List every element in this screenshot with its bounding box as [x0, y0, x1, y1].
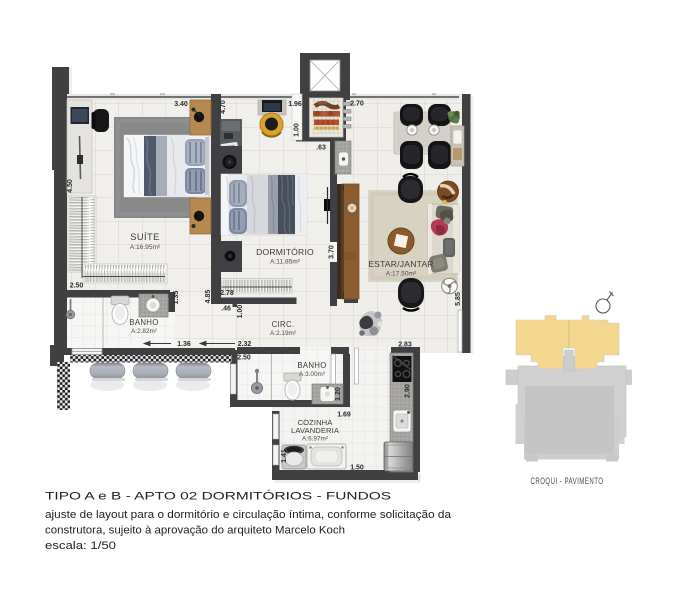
svg-text:.63: .63	[316, 145, 326, 152]
svg-text:A:17.50m²: A:17.50m²	[386, 271, 417, 278]
svg-text:SUÍTE: SUÍTE	[130, 232, 159, 242]
svg-text:1.35: 1.35	[173, 291, 180, 305]
svg-text:2.90: 2.90	[405, 384, 412, 398]
svg-text:1.69: 1.69	[337, 412, 351, 419]
svg-text:construtora, sujeito à aprovaç: construtora, sujeito à aprovação do arqu…	[45, 525, 345, 537]
svg-text:2.32: 2.32	[238, 341, 252, 348]
svg-text:2.50: 2.50	[237, 355, 251, 362]
svg-text:LAVANDERIA: LAVANDERIA	[291, 426, 340, 435]
svg-text:A:2.19m²: A:2.19m²	[270, 330, 296, 337]
svg-text:.46: .46	[221, 306, 231, 313]
svg-text:CIRC.: CIRC.	[272, 320, 295, 329]
svg-text:CROQUI - PAVIMENTO: CROQUI - PAVIMENTO	[531, 476, 604, 486]
svg-text:DORMITÓRIO: DORMITÓRIO	[256, 247, 314, 257]
svg-text:A:16.95m²: A:16.95m²	[130, 244, 161, 251]
svg-text:2.50: 2.50	[70, 283, 84, 290]
svg-text:1.00: 1.00	[237, 305, 244, 319]
svg-text:2.78: 2.78	[220, 290, 234, 297]
svg-text:BANHO: BANHO	[297, 361, 326, 370]
svg-text:A:11.85m²: A:11.85m²	[270, 259, 301, 266]
svg-text:4.85: 4.85	[205, 290, 212, 304]
svg-text:TIPO A e B - APTO 02 DORMITÓR: TIPO A e B - APTO 02 DORMITÓRIOS - FUNDO…	[45, 490, 392, 503]
svg-text:A:6.97m²: A:6.97m²	[302, 436, 328, 443]
svg-text:2.83: 2.83	[398, 342, 412, 349]
svg-text:3.70: 3.70	[329, 245, 336, 259]
svg-text:2.70: 2.70	[350, 101, 364, 108]
svg-text:1.50: 1.50	[350, 465, 364, 472]
svg-text:ESTAR/JANTAR: ESTAR/JANTAR	[368, 259, 434, 269]
svg-text:1.00: 1.00	[294, 123, 301, 137]
svg-text:ajuste de layout para o dormit: ajuste de layout para o dormitório e cir…	[45, 509, 452, 521]
svg-text:1.96: 1.96	[288, 101, 302, 108]
svg-text:5.85: 5.85	[455, 292, 462, 306]
svg-text:4.50: 4.50	[67, 179, 74, 193]
svg-text:1.36: 1.36	[177, 341, 191, 348]
svg-text:1.41: 1.41	[281, 449, 288, 463]
svg-text:3.40: 3.40	[174, 101, 188, 108]
svg-text:4.70: 4.70	[220, 100, 227, 114]
svg-text:A:3.00m²: A:3.00m²	[299, 371, 325, 378]
svg-text:BANHO: BANHO	[129, 318, 158, 327]
svg-text:escala: 1/50: escala: 1/50	[45, 540, 116, 552]
svg-text:A:2.82m²: A:2.82m²	[131, 328, 157, 335]
svg-text:1.20: 1.20	[335, 387, 342, 401]
